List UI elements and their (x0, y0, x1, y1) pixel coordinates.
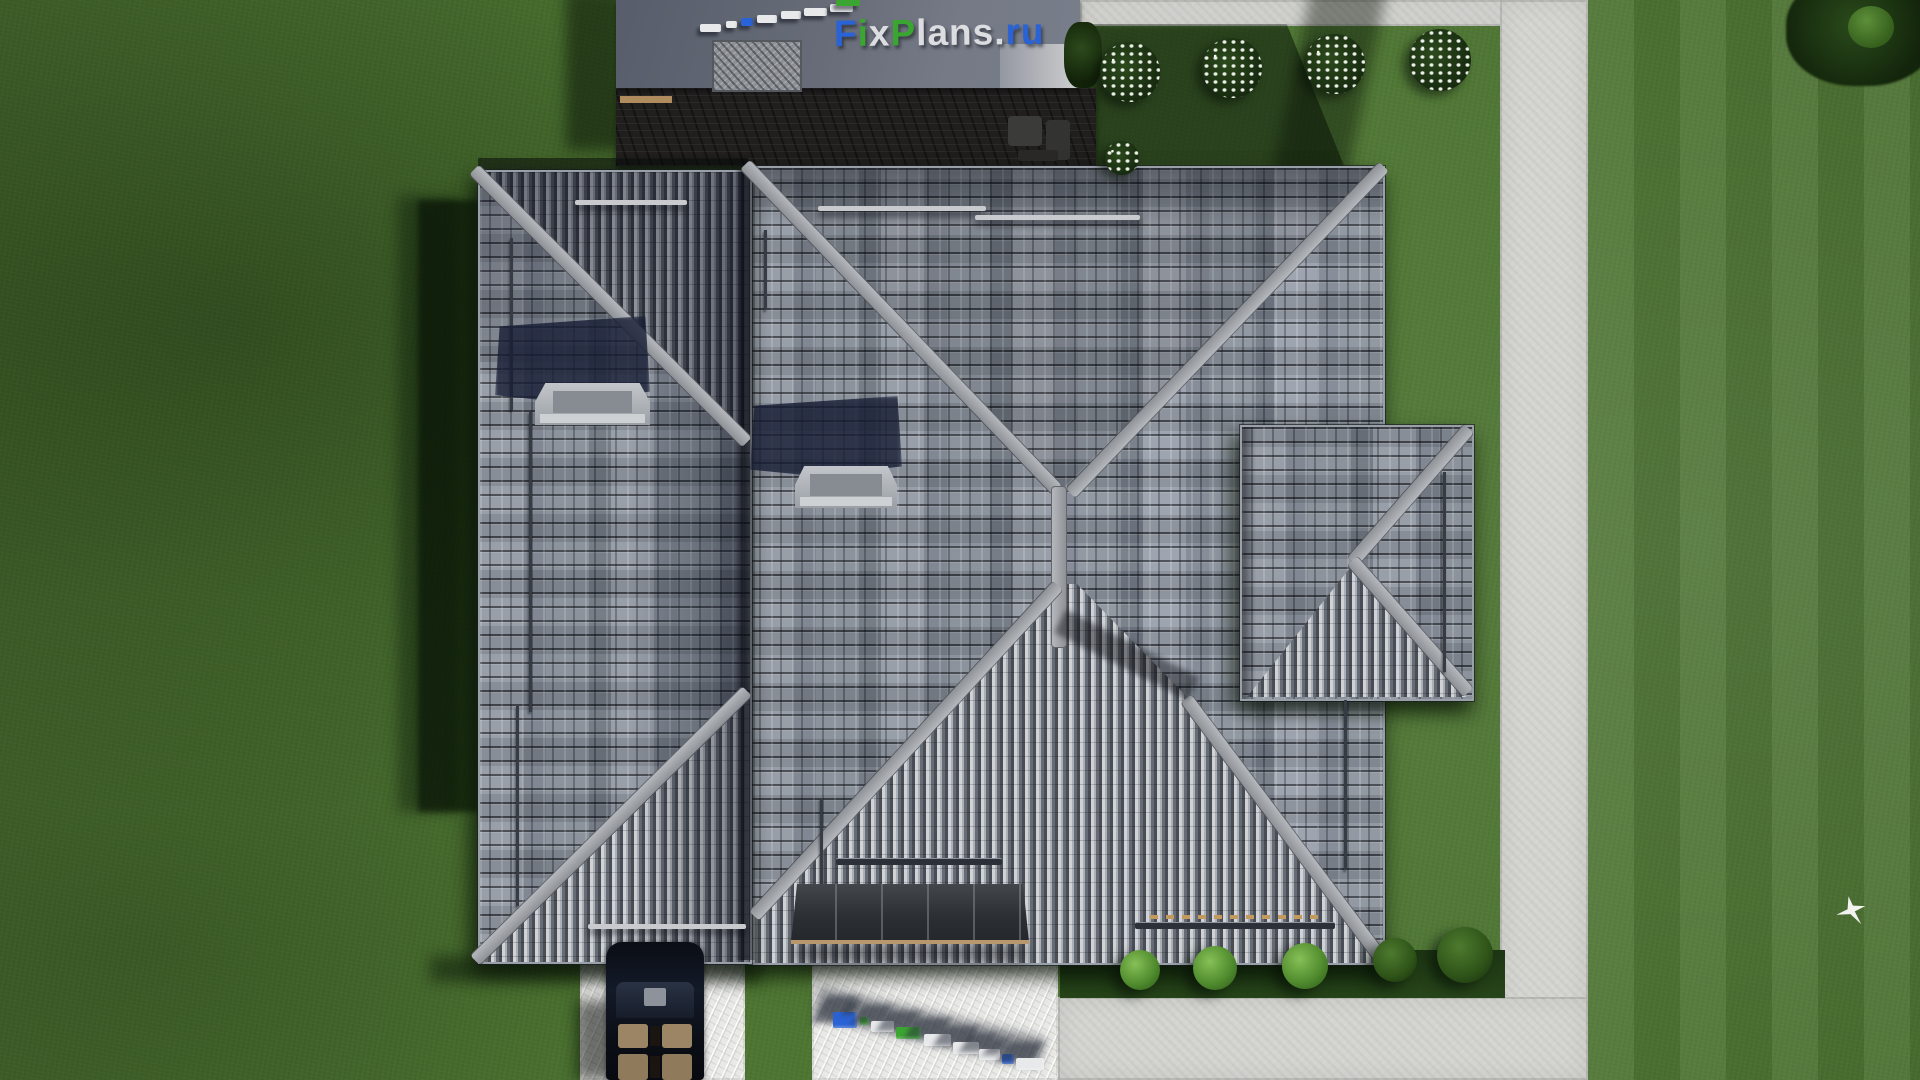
logo-letter: P (890, 12, 916, 53)
terrace-sofa (1008, 116, 1042, 146)
flowering-bush (1305, 34, 1365, 94)
bottom-pavement (1058, 997, 1588, 1080)
brand-logo: FixPlans.ru (834, 11, 1045, 55)
watermark-dash (726, 21, 737, 28)
flowering-bush (1105, 141, 1139, 175)
snow-guard-dark (836, 858, 1002, 865)
flowering-bush (1100, 42, 1160, 102)
logo-letter: F (834, 13, 858, 54)
skylight-glass (553, 391, 632, 413)
watermark-dash (804, 8, 827, 16)
watermark-dash (741, 18, 753, 26)
roof-rod (764, 230, 767, 310)
garden-bush (1120, 950, 1160, 990)
logo-letter: i (857, 13, 869, 54)
roof-rod (1443, 472, 1446, 672)
aerial-roof-render: FixPlans.ru (0, 0, 1920, 1080)
snow-guard (818, 206, 986, 211)
right-garden-path (1500, 0, 1588, 1080)
garden-bush (1282, 943, 1328, 989)
car-seat (618, 1054, 648, 1080)
roof-mass-left (478, 170, 752, 964)
terrace-table (1018, 150, 1058, 161)
flowering-bush (1202, 38, 1262, 98)
logo-letter: n (949, 12, 973, 53)
snow-guard-brackets (1150, 915, 1320, 919)
logo-letter: x (869, 13, 891, 54)
logo-letter: a (927, 12, 949, 53)
corner-bush (1848, 6, 1894, 48)
car-console (650, 1026, 660, 1046)
valley-between-masses (735, 170, 755, 960)
logo-letter: u (1021, 11, 1045, 52)
north-eave-gap-shadow (478, 158, 748, 170)
car-seat (662, 1024, 692, 1048)
skylight-sill (540, 414, 645, 423)
canopy-drip-edge (791, 940, 1029, 944)
watermark-dash (836, 0, 860, 6)
roof-rod (529, 412, 532, 712)
snow-guard (575, 200, 687, 205)
car-seat (618, 1024, 648, 1048)
canopy-shadow (795, 944, 1025, 962)
garden-bush (1193, 946, 1237, 990)
garage-chimney (712, 40, 802, 92)
porch-canopy (791, 884, 1029, 942)
mow-stripes (1588, 0, 1920, 1080)
watermark-dash (781, 11, 801, 19)
terrace-step (620, 96, 672, 103)
watermark-dash (700, 24, 721, 32)
logo-letter: s (972, 11, 994, 52)
flowering-bush (1409, 29, 1471, 91)
logo-letter: r (1005, 11, 1021, 52)
skylight-shadow (750, 396, 902, 476)
wing-valley-shadow (1242, 427, 1256, 699)
car-seat (662, 1054, 692, 1080)
garden-bush (1437, 927, 1493, 983)
skylight-glass (810, 474, 882, 496)
garage-shadow-west (566, 0, 622, 150)
roof-rod (1344, 700, 1347, 870)
snow-guard-dark (1135, 922, 1335, 929)
garden-bush (1373, 938, 1417, 982)
snow-guard (588, 924, 746, 929)
car (606, 942, 704, 1080)
watermark-dash (757, 15, 777, 23)
overhanging-foliage (1064, 22, 1102, 88)
snow-guard (975, 215, 1140, 220)
skylight-sill (800, 497, 892, 506)
watermark-block (1016, 1058, 1044, 1070)
car-headrest-bar (644, 988, 666, 1006)
roof-rod (516, 706, 519, 906)
car-console (650, 1056, 660, 1078)
house-shadow-west (418, 200, 480, 812)
